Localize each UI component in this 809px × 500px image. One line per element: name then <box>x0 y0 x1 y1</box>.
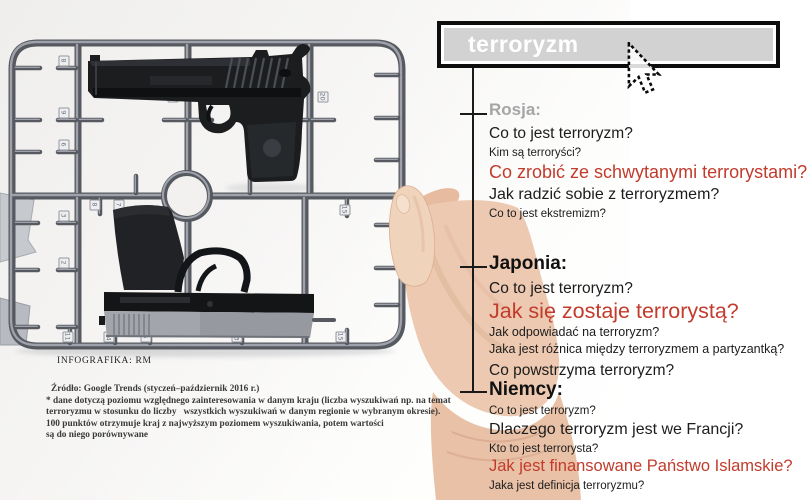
query-item-highlight: Jak się zostaje terrorystą? <box>489 299 807 323</box>
query-item: Dlaczego terroryzm jest we Francji? <box>489 420 807 439</box>
tag-label: 20 <box>319 92 327 100</box>
tag-label: 15 <box>337 332 345 340</box>
section-niemcy: Niemcy: Co to jest terroryzm? Dlaczego t… <box>489 378 807 493</box>
tag-label: 7 <box>115 202 123 206</box>
section-japonia: Japonia: Co to jest terroryzm? Jak się z… <box>489 252 807 380</box>
section-header: Niemcy: <box>489 378 807 401</box>
tick-rosja <box>460 113 487 115</box>
query-item: Jaka jest definicja terroryzmu? <box>489 479 807 493</box>
query-item: Jak odpowiadać na terroryzm? <box>489 325 807 340</box>
credit-line: INFOGRAFIKA: RM <box>57 356 152 366</box>
tag-label: 3 <box>60 213 68 217</box>
query-item: Kim są terroryści? <box>489 146 807 160</box>
source-line: są do niego porównywane <box>46 430 451 442</box>
pistol-bottom <box>99 205 334 338</box>
tag-label: 9 <box>60 110 68 114</box>
tag-label: 15 <box>341 205 349 213</box>
query-item-highlight: Co zrobić ze schwytanymi terrorystami? <box>489 162 807 183</box>
tick-niemcy <box>460 391 487 393</box>
query-item: Co to jest terroryzm? <box>489 124 807 143</box>
front-sight <box>90 55 100 61</box>
tick-japonia <box>460 266 487 268</box>
tag-label: 11 <box>64 332 72 340</box>
tag-label: 8 <box>91 202 99 206</box>
query-item: Kto to jest terrorysta? <box>489 442 807 456</box>
source-note: Źródło: Google Trends (styczeń–październ… <box>46 384 451 442</box>
query-item: Co to jest ekstremizm? <box>489 207 807 221</box>
source-line: terroryzmu w stosunku do liczby wszystki… <box>46 407 451 419</box>
tag-label: 8 <box>60 58 68 62</box>
query-item: Co to jest terroryzm? <box>489 279 807 298</box>
search-box[interactable]: terroryzm <box>437 21 780 68</box>
tag-label: 2 <box>60 260 68 264</box>
grip-medallion <box>263 139 281 157</box>
pistol-top <box>88 44 310 182</box>
connector-line <box>472 68 474 393</box>
infographic: 8 9 6 12 20 3 2 8 7 15 11 14 5 13 15 <box>0 0 809 500</box>
query-item-highlight: Jak jest finansowane Państwo Islamskie? <box>489 457 807 476</box>
query-item: Jak radzić sobie z terroryzmem? <box>489 185 807 204</box>
trigger <box>198 266 216 291</box>
section-header: Rosja: <box>489 100 807 120</box>
query-item: Co to jest terroryzm? <box>489 404 807 418</box>
source-line: * dane dotyczą poziomu względnego zainte… <box>46 396 451 408</box>
cursor-arrow-icon <box>624 42 678 94</box>
section-rosja: Rosja: Co to jest terroryzm? Kim są terr… <box>489 100 807 221</box>
source-line: 100 punktów otrzymuje kraj z najwyższym … <box>46 419 451 431</box>
section-header: Japonia: <box>489 252 807 275</box>
tag-label: 6 <box>60 142 68 146</box>
search-query: terroryzm <box>468 31 579 58</box>
query-item: Jaka jest różnica między terroryzmem a p… <box>489 342 807 357</box>
source-line: Źródło: Google Trends (styczeń–październ… <box>46 384 451 396</box>
